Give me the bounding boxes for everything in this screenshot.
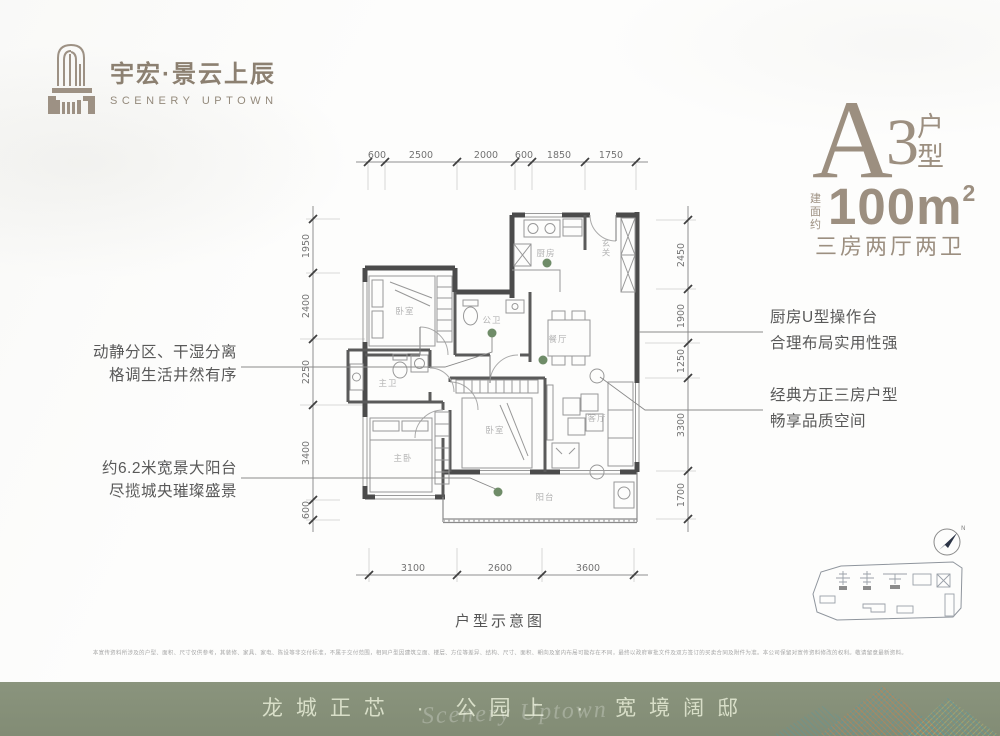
compass-siteplan: N [795, 516, 995, 640]
svg-text:3400: 3400 [301, 441, 312, 465]
unit-area: 建面约 100m 2 [810, 184, 975, 233]
poster-page: 宇宏·景云上辰 SCENERY UPTOWN A 3 户型 建面约 100m 2… [0, 0, 1000, 736]
siteplan-diagram [813, 562, 962, 620]
svg-text:2000: 2000 [474, 150, 498, 161]
brand-logo: 宇宏·景云上辰 SCENERY UPTOWN [46, 40, 278, 120]
svg-text:2450: 2450 [676, 243, 687, 267]
area-exponent: 2 [962, 180, 975, 207]
floorplan-svg: 600 2500 2000 600 1850 1750 3100 2600 36… [100, 130, 770, 640]
building-logo-icon [46, 40, 98, 120]
room-label-foyer: 玄关 [600, 238, 610, 258]
annotation-right1-line1: 厨房U型操作台 [770, 305, 878, 327]
svg-text:2500: 2500 [409, 150, 433, 161]
svg-text:2250: 2250 [301, 360, 312, 384]
svg-text:1850: 1850 [547, 150, 571, 161]
room-label-kitchen: 厨房 [536, 248, 555, 259]
annotation-right1-line2: 合理布局实用性强 [770, 331, 898, 353]
annotation-right2-line2: 畅享品质空间 [770, 409, 866, 431]
svg-text:3600: 3600 [576, 563, 600, 574]
room-label-balcony: 阳台 [535, 492, 554, 503]
svg-text:3100: 3100 [401, 563, 425, 574]
unit-layout: 三房两厅两卫 [815, 229, 965, 261]
svg-text:N: N [961, 525, 966, 532]
room-label-guest-bath: 公卫 [482, 316, 501, 326]
room-label-living: 客厅 [587, 413, 606, 424]
dimension-lines [313, 162, 688, 575]
bottom-banner: 龙城正芯 · 公园上 · 宽境阔邸 Scenery Uptown [0, 682, 1000, 736]
furniture [350, 218, 635, 508]
svg-text:600: 600 [368, 150, 386, 161]
svg-text:3300: 3300 [676, 413, 687, 437]
svg-text:2400: 2400 [301, 294, 312, 318]
room-label-master-bath: 主卫 [378, 378, 397, 389]
brand-name-cn: 宇宏·景云上辰 [110, 54, 278, 89]
unit-type-label: 户型 [917, 112, 947, 172]
svg-text:1900: 1900 [676, 304, 687, 328]
floorplan: 600 2500 2000 600 1850 1750 3100 2600 36… [100, 130, 770, 640]
room-label-dining: 餐厅 [548, 335, 567, 345]
annotation-right2-line1: 经典方正三房户型 [770, 383, 898, 405]
unit-number: 3 [886, 110, 919, 176]
plan-caption: 户型示意图 [455, 612, 545, 630]
svg-text:1700: 1700 [676, 483, 687, 507]
area-value: 100m [828, 184, 962, 230]
svg-text:1950: 1950 [301, 234, 312, 258]
room-label-master-bedroom: 主卧 [393, 453, 412, 464]
svg-text:1250: 1250 [676, 349, 687, 373]
room-label-bedroom1: 卧室 [395, 306, 414, 317]
disclaimer: 本宣传资料所涉及的户型、面积、尺寸仅供参考，其装修、家具、家电、陈设等非交付标准… [44, 648, 957, 656]
svg-text:2600: 2600 [488, 563, 512, 574]
brand-name-en: SCENERY UPTOWN [110, 95, 278, 107]
room-label-bedroom2: 卧室 [485, 425, 504, 436]
compass-icon: N [934, 525, 966, 555]
area-prefix: 建面约 [810, 193, 823, 233]
room-labels: 卧室 公卫 厨房 玄关 餐厅 主卫 主卧 卧室 客厅 阳台 [378, 238, 610, 503]
svg-text:1750: 1750 [599, 150, 623, 161]
svg-text:600: 600 [301, 501, 312, 519]
svg-text:600: 600 [515, 150, 533, 161]
